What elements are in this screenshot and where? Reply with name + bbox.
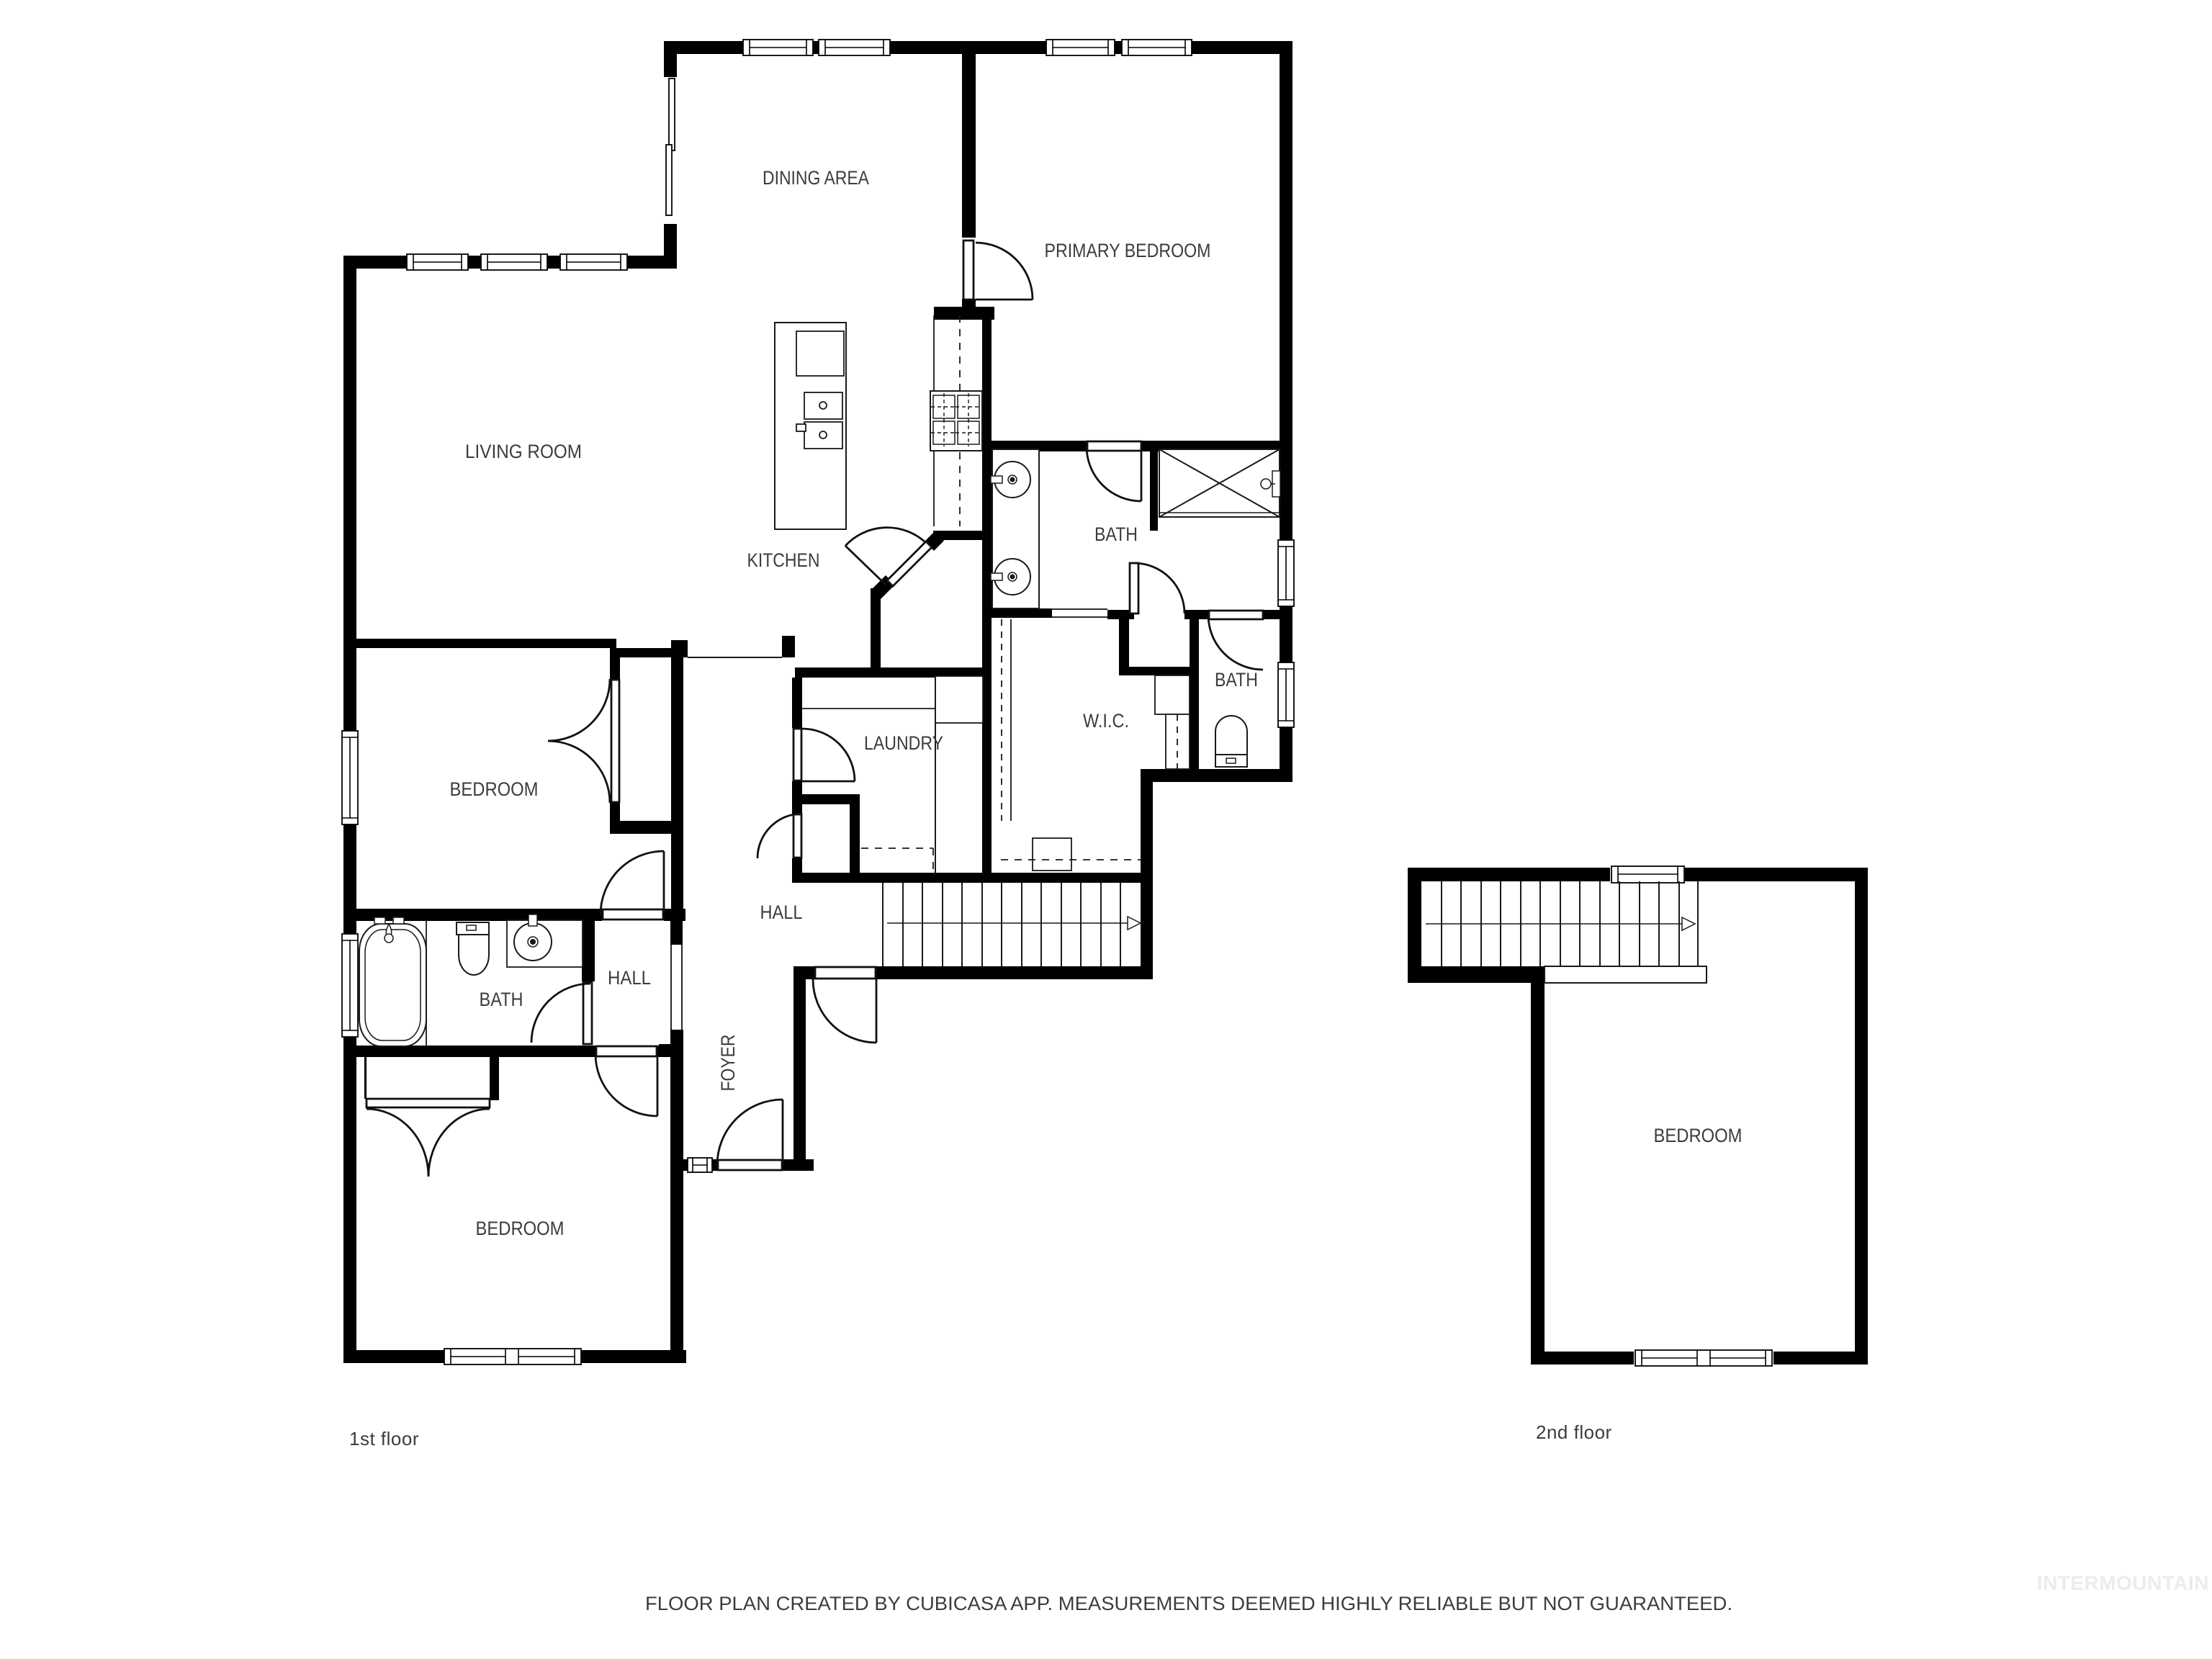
svg-text:DINING AREA: DINING AREA	[763, 167, 869, 189]
svg-text:INTERMOUNTAIN: INTERMOUNTAIN	[2037, 1572, 2209, 1594]
svg-text:1st floor: 1st floor	[349, 1428, 419, 1449]
svg-text:BEDROOM: BEDROOM	[450, 778, 539, 800]
svg-text:PRIMARY BEDROOM: PRIMARY BEDROOM	[1045, 240, 1211, 261]
svg-text:BATH: BATH	[1215, 669, 1258, 691]
svg-text:FLOOR PLAN CREATED BY CUBICASA: FLOOR PLAN CREATED BY CUBICASA APP. MEAS…	[645, 1593, 1732, 1614]
svg-text:BATH: BATH	[480, 989, 523, 1010]
svg-text:BEDROOM: BEDROOM	[476, 1218, 565, 1239]
svg-text:2nd floor: 2nd floor	[1536, 1421, 1612, 1443]
svg-text:FOYER: FOYER	[717, 1035, 739, 1092]
svg-text:BATH: BATH	[1094, 523, 1138, 545]
svg-text:LIVING ROOM: LIVING ROOM	[465, 441, 582, 462]
svg-text:LAUNDRY: LAUNDRY	[864, 732, 943, 754]
svg-text:HALL: HALL	[760, 902, 803, 923]
svg-text:HALL: HALL	[608, 967, 651, 989]
svg-text:BEDROOM: BEDROOM	[1654, 1125, 1743, 1146]
svg-text:W.I.C.: W.I.C.	[1083, 710, 1129, 732]
svg-text:KITCHEN: KITCHEN	[747, 549, 820, 571]
